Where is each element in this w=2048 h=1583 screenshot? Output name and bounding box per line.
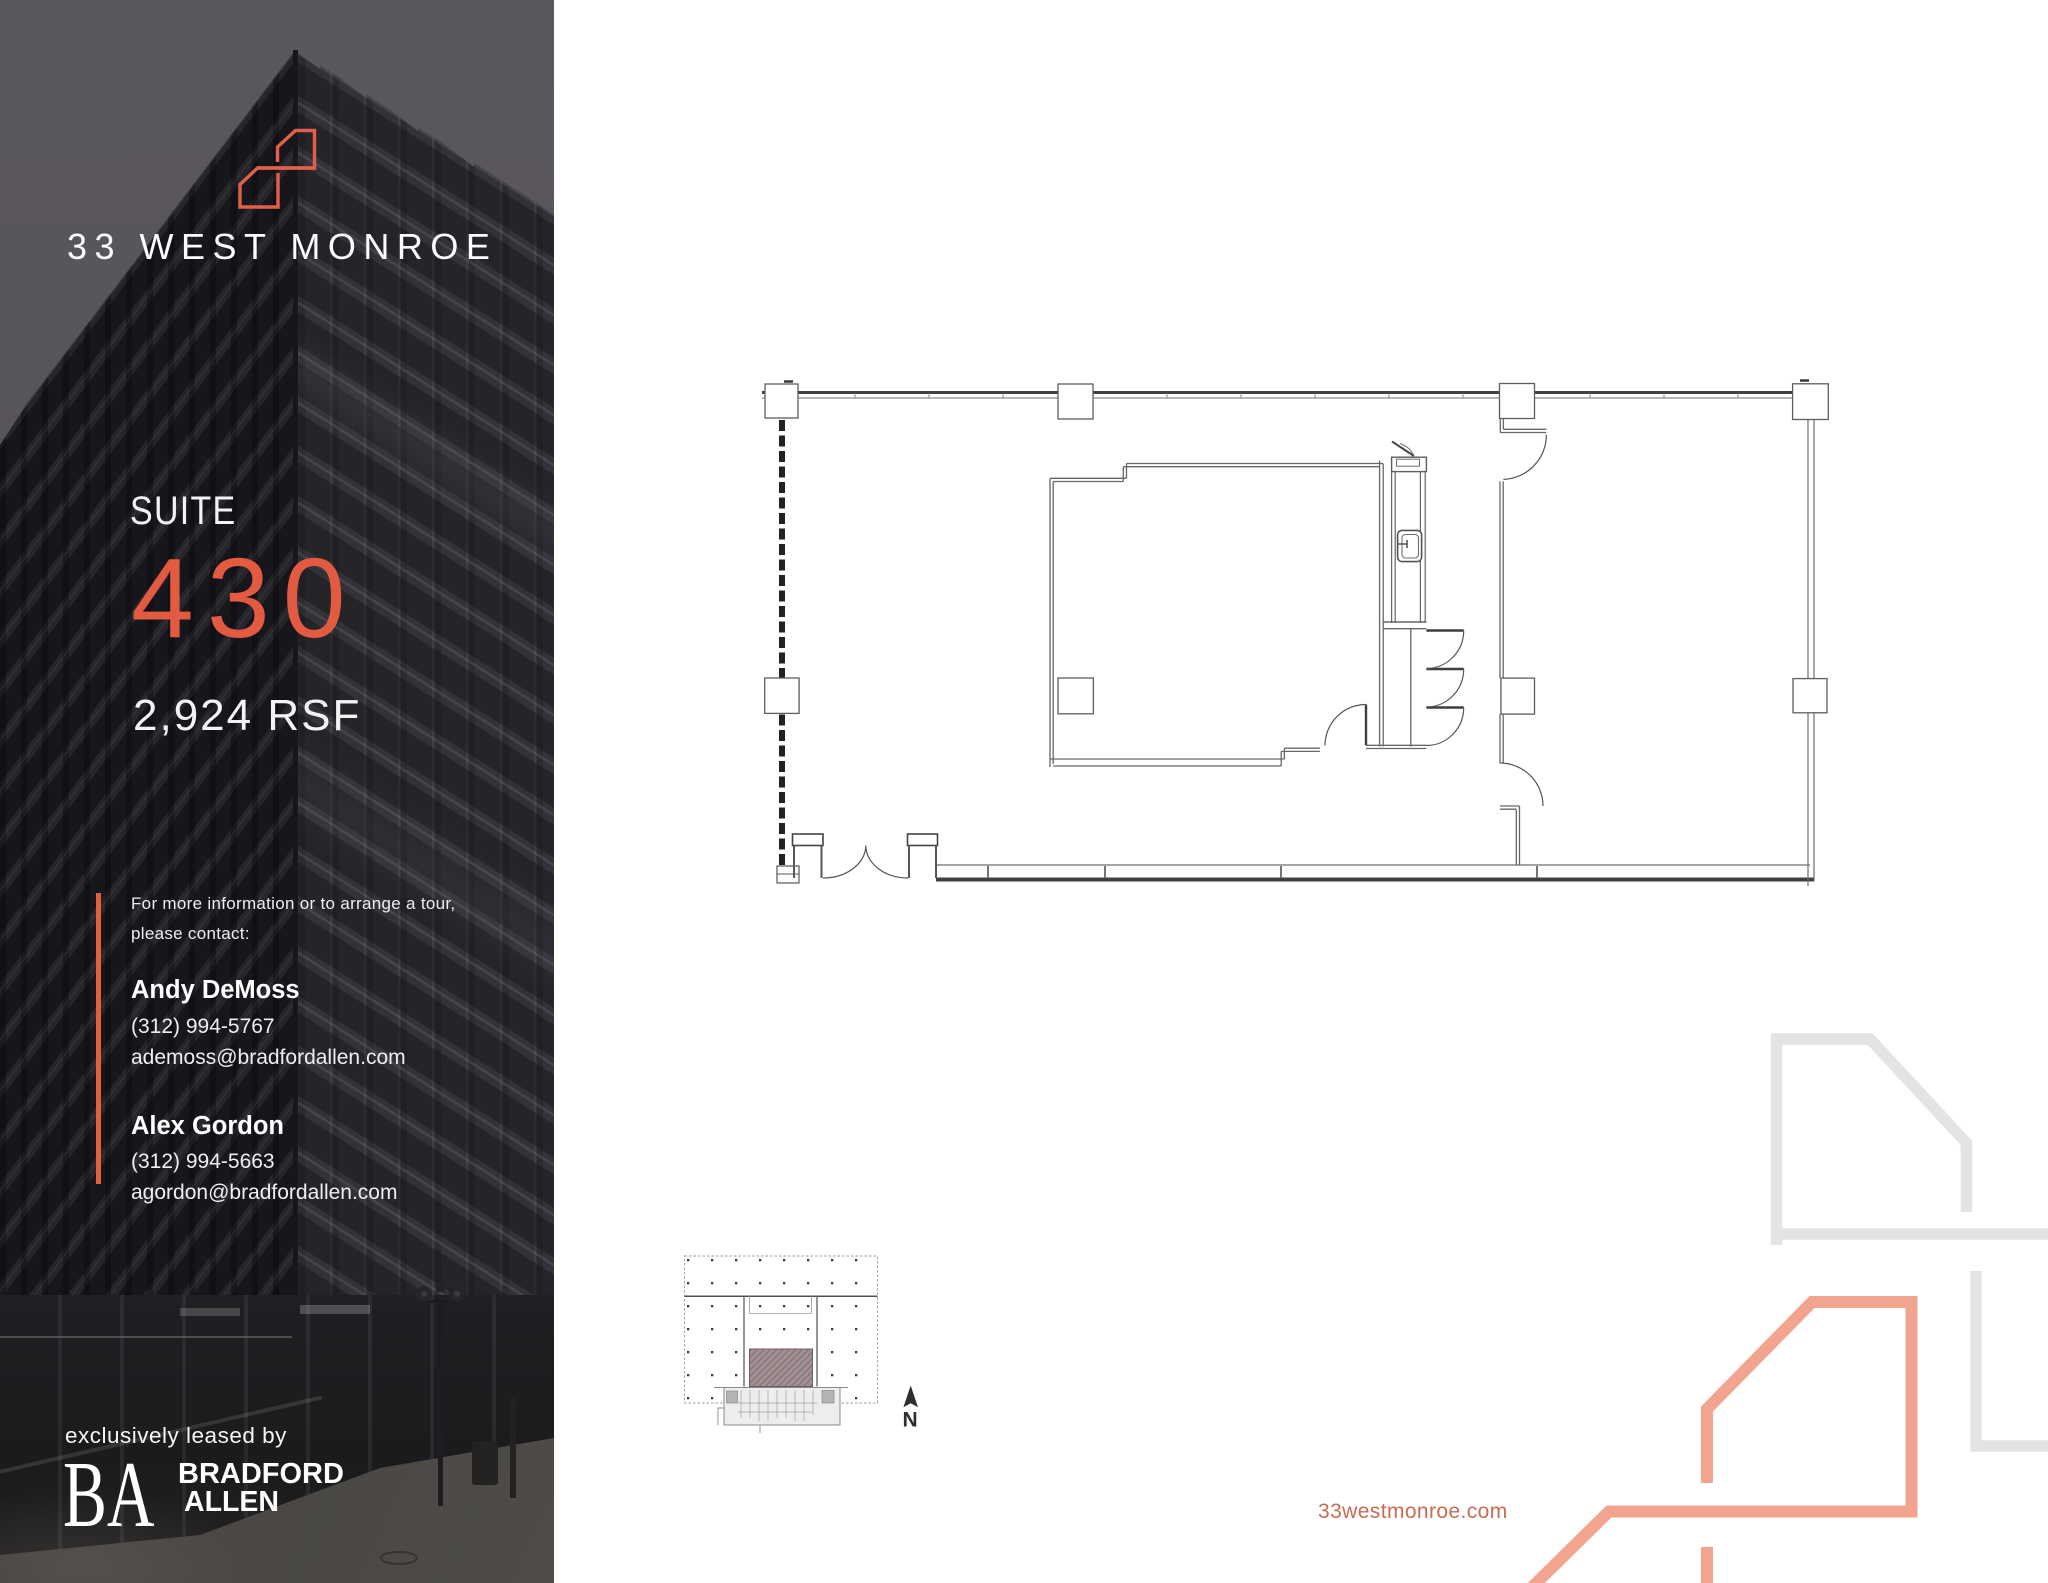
svg-text:N: N [903,1409,918,1432]
svg-text:33westmonroe.com: 33westmonroe.com [1318,1500,1508,1523]
